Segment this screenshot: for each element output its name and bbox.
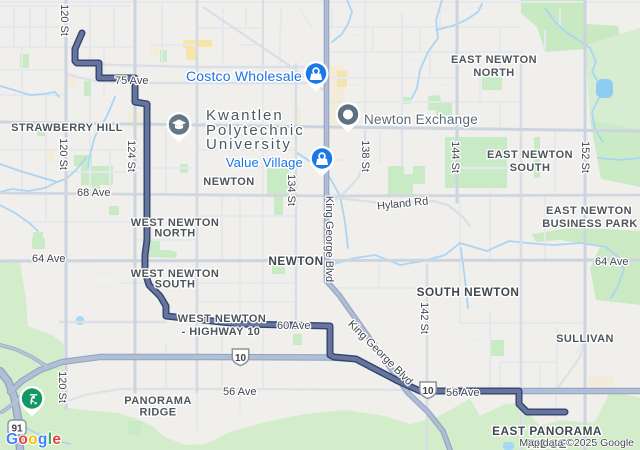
svg-text:64 Ave: 64 Ave [32, 253, 65, 265]
svg-text:STRAWBERRY HILL: STRAWBERRY HILL [11, 122, 123, 134]
svg-text:Newton Exchange: Newton Exchange [364, 112, 478, 127]
svg-text:10: 10 [235, 353, 247, 364]
svg-text:University: University [206, 136, 292, 153]
svg-text:BUSINESS PARK: BUSINESS PARK [542, 218, 638, 230]
svg-text:Value Village: Value Village [226, 155, 303, 170]
svg-text:NEWTON: NEWTON [203, 176, 254, 188]
svg-text:EAST NEWTON: EAST NEWTON [546, 205, 632, 217]
svg-text:144 St: 144 St [449, 141, 461, 173]
svg-text:Map data ©2025 Google: Map data ©2025 Google [519, 437, 634, 449]
svg-text:68 Ave: 68 Ave [77, 187, 110, 199]
svg-text:120 St: 120 St [58, 4, 70, 36]
svg-text:Costco Wholesale: Costco Wholesale [186, 68, 302, 84]
svg-text:NEWTON: NEWTON [268, 254, 323, 268]
svg-text:- HIGHWAY 10: - HIGHWAY 10 [182, 326, 261, 338]
svg-text:SOUTH: SOUTH [155, 279, 196, 291]
svg-text:56 Ave: 56 Ave [446, 387, 479, 399]
svg-text:PANORAMA: PANORAMA [124, 395, 192, 407]
svg-text:138 St: 138 St [359, 140, 371, 172]
svg-text:RIDGE: RIDGE [139, 407, 176, 419]
svg-text:60 Ave: 60 Ave [277, 320, 310, 332]
svg-text:WEST NEWTON: WEST NEWTON [178, 313, 266, 325]
svg-text:SULLIVAN: SULLIVAN [556, 333, 614, 345]
svg-text:152 St: 152 St [579, 141, 591, 173]
svg-text:120 St: 120 St [56, 371, 68, 403]
svg-text:NORTH: NORTH [154, 228, 195, 240]
svg-text:NORTH: NORTH [473, 67, 514, 79]
svg-text:142 St: 142 St [418, 302, 430, 334]
svg-text:King George Blvd: King George Blvd [323, 196, 335, 282]
svg-text:64 Ave: 64 Ave [595, 256, 628, 268]
svg-text:10: 10 [422, 386, 434, 397]
svg-text:SOUTH NEWTON: SOUTH NEWTON [417, 285, 520, 299]
svg-text:Google: Google [6, 431, 61, 448]
svg-text:134 St: 134 St [285, 174, 297, 206]
svg-text:124 St: 124 St [125, 140, 137, 172]
svg-text:56 Ave: 56 Ave [223, 386, 256, 398]
svg-text:75 Ave: 75 Ave [115, 75, 148, 87]
svg-text:EAST NEWTON: EAST NEWTON [451, 54, 537, 66]
svg-text:EAST PANORAMA: EAST PANORAMA [492, 424, 602, 438]
svg-text:120 St: 120 St [57, 138, 69, 170]
svg-text:SOUTH: SOUTH [510, 162, 551, 174]
svg-text:EAST NEWTON: EAST NEWTON [487, 149, 573, 161]
